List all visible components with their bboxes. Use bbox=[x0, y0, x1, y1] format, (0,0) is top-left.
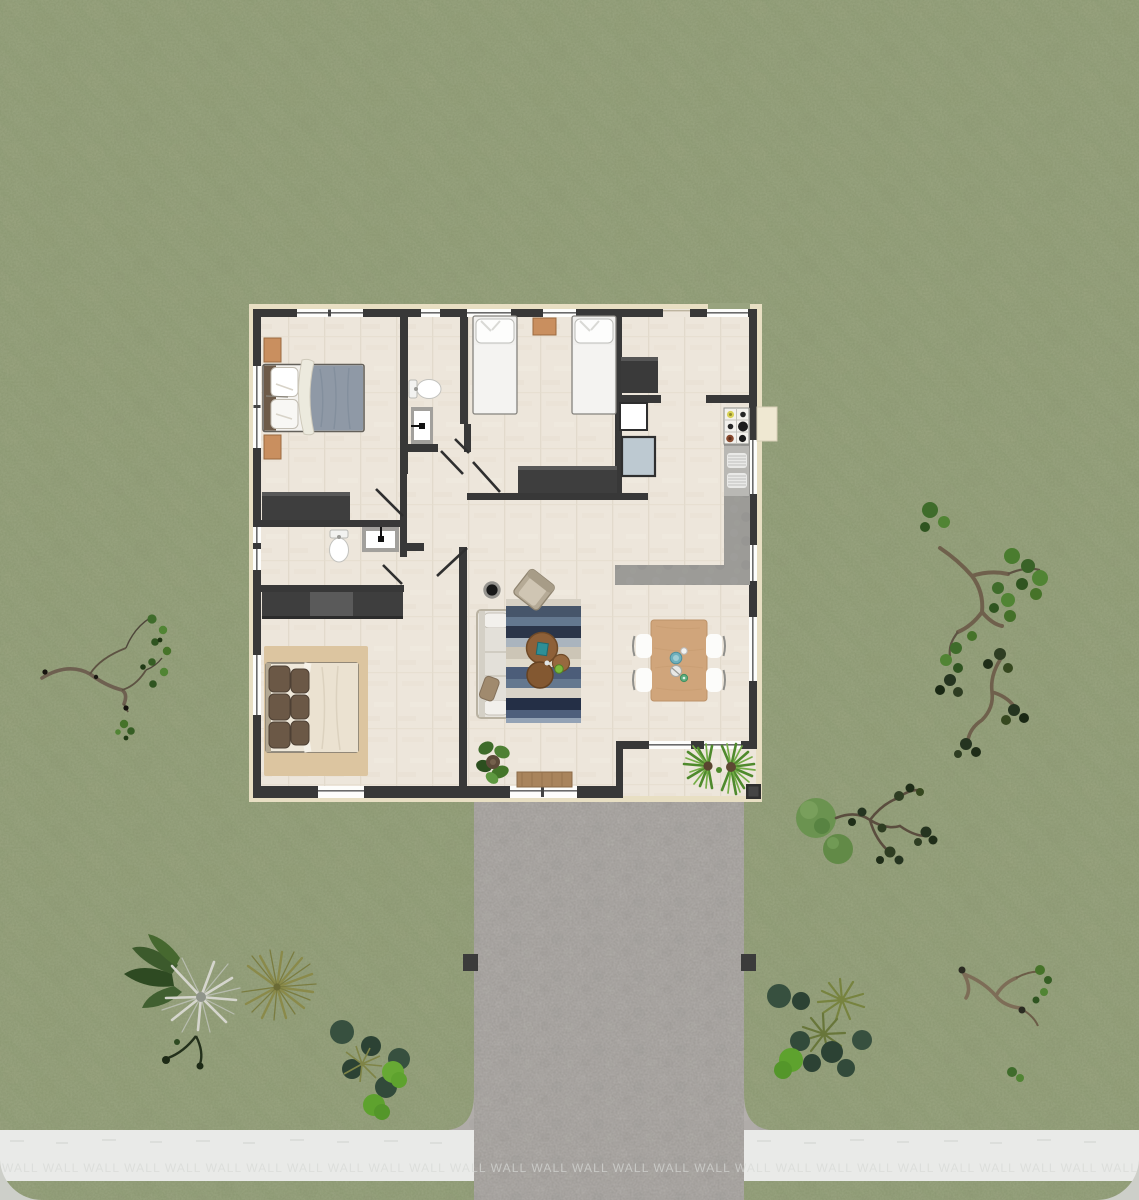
svg-text:WALL WALL WALL WALL WALL WALL: WALL WALL WALL WALL WALL WALL WALL WALL … bbox=[2, 1161, 1137, 1175]
